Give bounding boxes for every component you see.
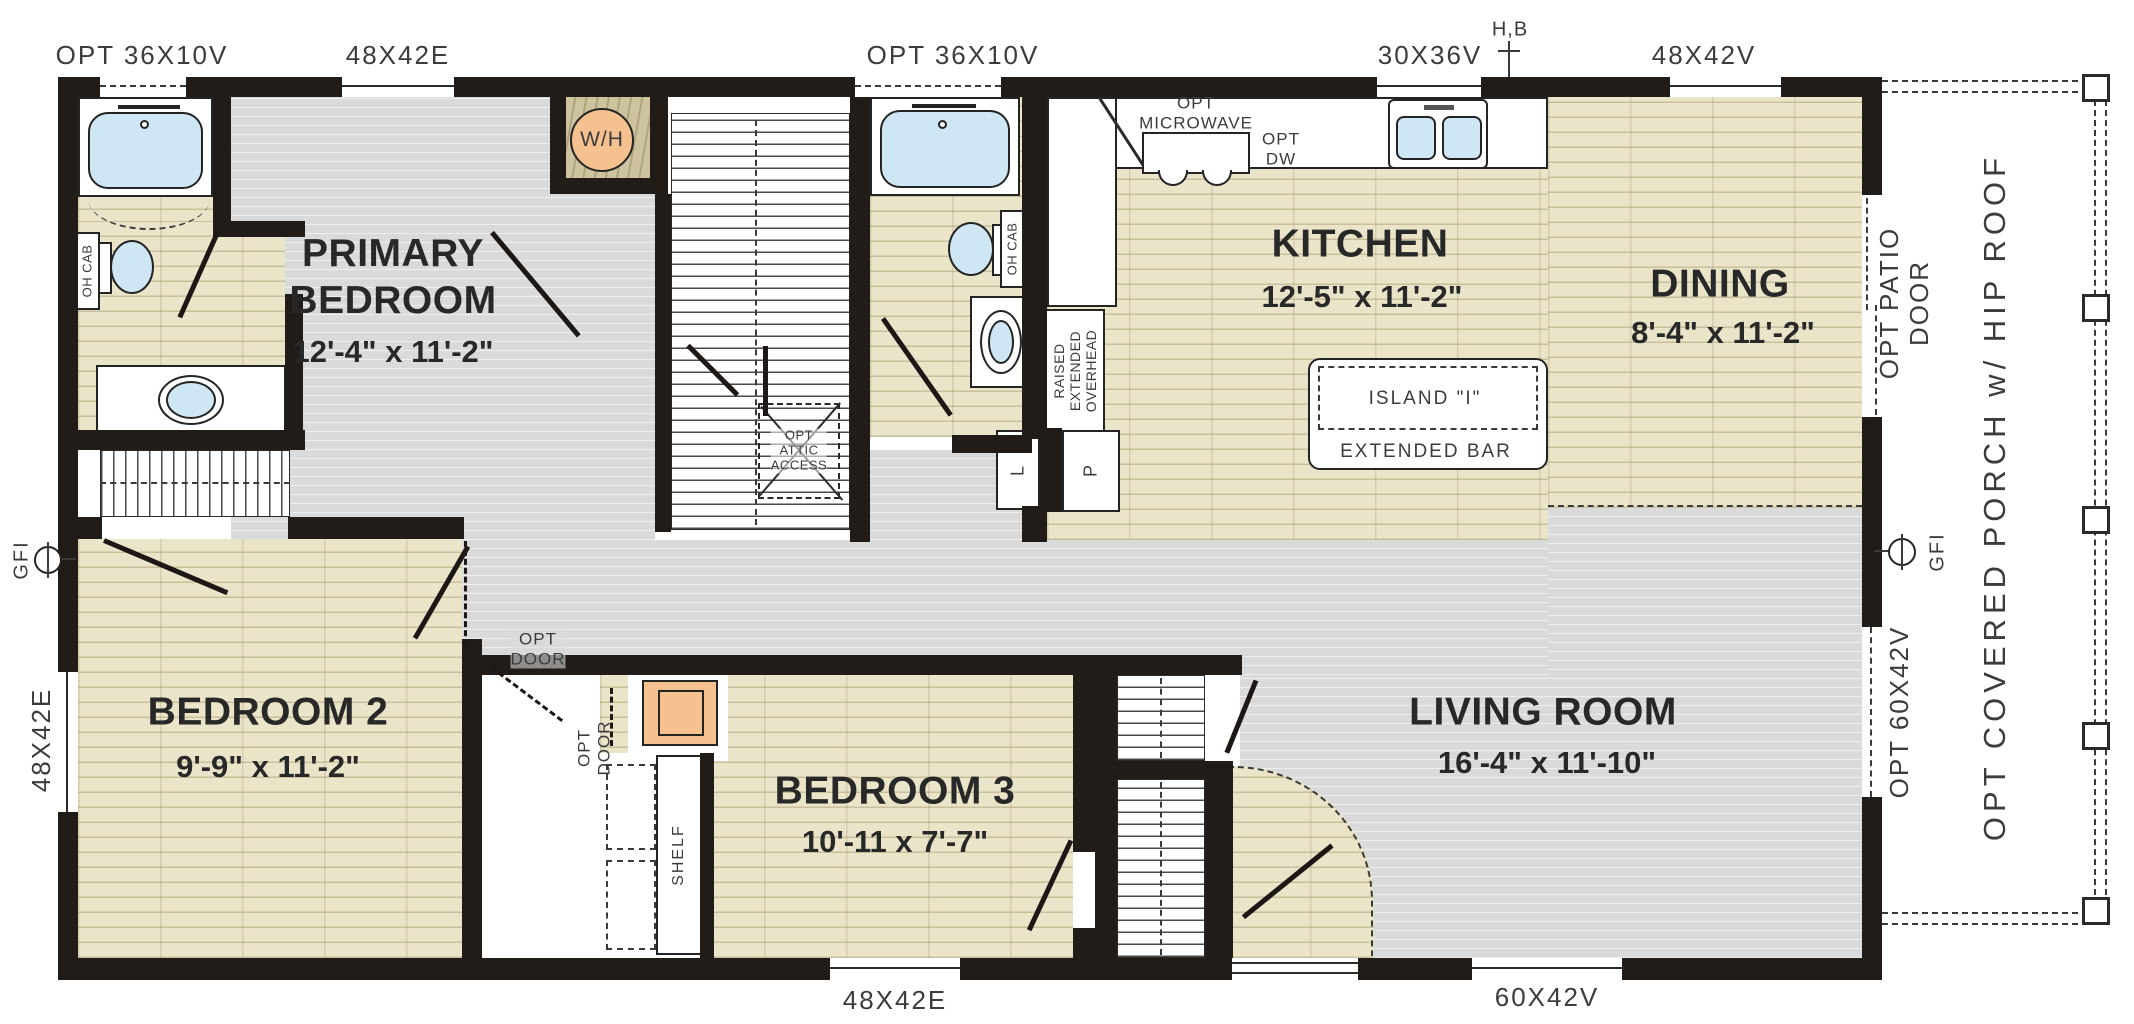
gfi-symbol-right-line: [1901, 534, 1903, 570]
bedroom2-dims: 9'-9" x 11'-2": [176, 749, 360, 785]
bath2-washer-glass: [988, 320, 1014, 364]
wall: [1040, 428, 1062, 512]
wall: [1095, 675, 1117, 958]
opt-microwave-label: OPT MICROWAVE: [1139, 93, 1253, 132]
living-room-dims: 16'-4" x 11'-10": [1438, 745, 1656, 781]
bath2-ohcab-label: OH CAB: [1006, 223, 1021, 276]
window-line: [1870, 627, 1872, 797]
raised-overhead-label: RAISED EXTENDED OVERHEAD: [1051, 330, 1099, 413]
porch-label: OPT COVERED PORCH w/ HIP ROOF: [1977, 153, 2013, 841]
kitchen-sink-faucet: [1424, 105, 1454, 110]
window-48x42e-left: [58, 672, 78, 812]
hose-bib-tick: [1508, 61, 1510, 77]
porch-roof-line-bottom-1: [1882, 912, 2108, 914]
opt-dryer-box: [606, 860, 656, 950]
window-line: [66, 672, 68, 812]
gfi-symbol-left-line: [47, 542, 49, 578]
window-label-opt36-2: OPT 36X10V: [867, 41, 1040, 71]
opt-washer-box: [606, 764, 656, 850]
bath1-toilet-bowl: [110, 240, 154, 294]
wall: [1022, 97, 1047, 439]
bedroom2-label: BEDROOM 2: [148, 690, 389, 737]
window-line: [342, 85, 454, 87]
porch-roof-line-bottom-2: [1882, 923, 2108, 925]
opt-dw-label: OPT DW: [1262, 129, 1300, 168]
window-label-opt60x42v: OPT 60X42V: [1885, 626, 1915, 799]
porch-post: [2082, 74, 2110, 102]
wall: [700, 753, 714, 958]
window-30x36v: [1377, 77, 1481, 97]
bath1-tub-drain: [140, 120, 149, 129]
window-label-60x42v: 60X42V: [1495, 983, 1600, 1013]
bedroom3-label: BEDROOM 3: [775, 769, 1016, 816]
window-line: [830, 967, 960, 969]
window-line: [1377, 85, 1481, 87]
bath2-toilet-bowl: [948, 222, 994, 276]
wall: [482, 655, 1242, 675]
porch-post: [2082, 294, 2110, 322]
window-48x42e-top: [342, 77, 454, 97]
living-room-label: LIVING ROOM: [1409, 690, 1677, 737]
bath1-sink-inner: [166, 381, 216, 419]
window-label-48x42e-left: 48X42E: [27, 688, 57, 793]
floorplan-page: { "rooms": { "primary": {"name": "PRIMAR…: [0, 0, 2134, 1024]
wall: [58, 430, 305, 450]
kitchen-counter-left: [1047, 97, 1117, 307]
window-label-48x42v: 48X42V: [1652, 41, 1757, 71]
shelf-label: SHELF: [670, 824, 688, 886]
closet-door-leaf: [763, 346, 768, 416]
window-line: [855, 85, 1001, 87]
extended-bar-label: EXTENDED BAR: [1340, 441, 1512, 463]
hose-bib-label: H,B: [1492, 19, 1528, 42]
kitchen-label: KITCHEN: [1272, 222, 1449, 269]
porch-roof-line-right-1: [2094, 80, 2096, 925]
bath2-tub-drain: [938, 120, 947, 129]
water-heater-label: W/H: [580, 128, 624, 152]
wall: [850, 97, 870, 542]
porch-post: [2082, 506, 2110, 534]
wall: [288, 517, 464, 539]
wall: [1022, 506, 1047, 542]
primary-closet-rod: [755, 120, 757, 525]
window-line: [1670, 85, 1781, 87]
wall: [1117, 761, 1207, 779]
window-label-48x42e-top: 48X42E: [346, 41, 451, 71]
wall: [952, 435, 1032, 453]
primary-bedroom-label: PRIMARY BEDROOM: [289, 231, 496, 325]
patio-door-label: OPT PATIO DOOR: [1875, 189, 1935, 418]
window-label-opt36-1: OPT 36X10V: [56, 41, 229, 71]
island-label: ISLAND "I": [1369, 388, 1482, 410]
attic-access-label: OPT ATTIC ACCESS: [771, 429, 827, 474]
window-line: [1472, 967, 1622, 969]
window-48x42e-bottom: [830, 958, 960, 980]
wall: [1073, 928, 1095, 958]
bath1-tub-faucet: [118, 105, 180, 109]
kitchen-sink-basin-left: [1396, 116, 1436, 160]
opt-door-label-hall: OPT DOOR: [511, 629, 566, 668]
entry-closet-rod: [1160, 782, 1162, 955]
window-opt-36x10v-2: [855, 77, 1001, 97]
wall: [462, 639, 482, 958]
wall: [1205, 761, 1233, 958]
dining-label: DINING: [1650, 262, 1790, 309]
dining-dims: 8'-4" x 11'-2": [1631, 315, 1815, 351]
window-opt-60x42v: [1862, 627, 1882, 797]
porch-roof-line-top-1: [1882, 80, 2108, 82]
furnace-inner-square: [658, 690, 704, 736]
kitchen-sink-basin-right: [1442, 116, 1482, 160]
front-door-sill-2: [1232, 972, 1358, 974]
pantry-label: P: [1081, 463, 1102, 477]
linen-label: L: [1008, 464, 1029, 476]
patio-door-panel-1: [1866, 198, 1868, 310]
dining-living-divider-line: [1548, 505, 1862, 507]
primary-bedroom-dims: 12'-4" x 11'-2": [293, 334, 494, 370]
bath2-tub-faucet: [912, 104, 976, 108]
opt-door-hall: [464, 541, 467, 645]
gfi-tick-left: [60, 558, 76, 560]
bath1-ohcab-label: OH CAB: [81, 245, 96, 298]
wall: [650, 97, 668, 194]
hall-closet-rod: [1160, 678, 1162, 758]
kitchen-dims: 12'-5" x 11'-2": [1262, 279, 1463, 315]
window-line: [100, 85, 186, 87]
bedroom2-closet-rod: [100, 482, 290, 484]
bath1-door-arc: [88, 168, 210, 230]
gfi-label-left: GFI: [11, 540, 34, 579]
window-60x42v: [1472, 958, 1622, 980]
porch-post: [2082, 722, 2110, 750]
window-48x42v: [1670, 77, 1781, 97]
hose-bib-cross-v: [1508, 41, 1510, 61]
wall: [655, 194, 671, 532]
kitchen-range: [1142, 132, 1250, 174]
wall: [213, 97, 231, 229]
front-door-sill-1: [1232, 962, 1358, 964]
opt-door-label-bedroom3: OPT DOOR: [574, 721, 613, 776]
window-opt-36x10v-1: [100, 77, 186, 97]
porch-post: [2082, 897, 2110, 925]
window-label-30x36v: 30X36V: [1378, 41, 1483, 71]
wall: [1073, 675, 1095, 852]
window-label-48x42e-bottom: 48X42E: [843, 986, 948, 1016]
wall: [58, 517, 102, 539]
wall: [550, 178, 654, 194]
bedroom3-dims: 10'-11 x 7'-7": [802, 824, 988, 860]
porch-roof-line-right-2: [2105, 80, 2107, 925]
gfi-label-right: GFI: [1927, 532, 1950, 571]
porch-roof-line-top-2: [1882, 91, 2108, 93]
